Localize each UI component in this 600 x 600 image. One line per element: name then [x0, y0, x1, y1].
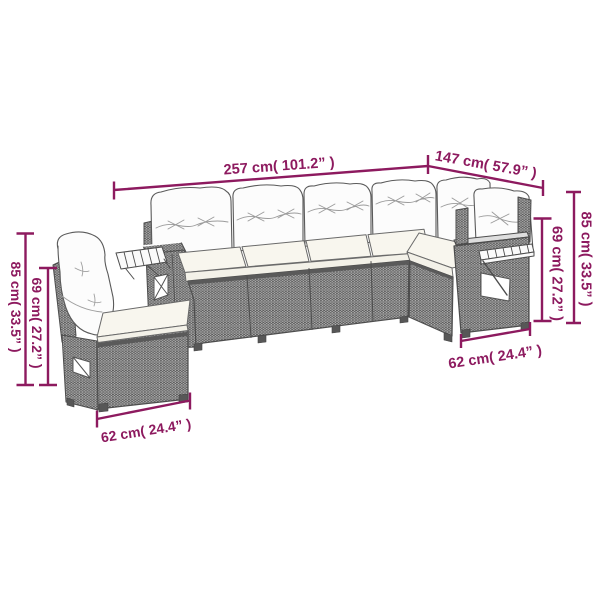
svg-text:85 cm( 33.5” ): 85 cm( 33.5” )	[577, 212, 593, 307]
svg-text:69 cm( 27.2” ): 69 cm( 27.2” )	[29, 277, 45, 368]
svg-text:85 cm( 33.5” ): 85 cm( 33.5” )	[8, 261, 24, 352]
svg-text:69 cm( 27.2” ): 69 cm( 27.2” )	[548, 226, 564, 321]
